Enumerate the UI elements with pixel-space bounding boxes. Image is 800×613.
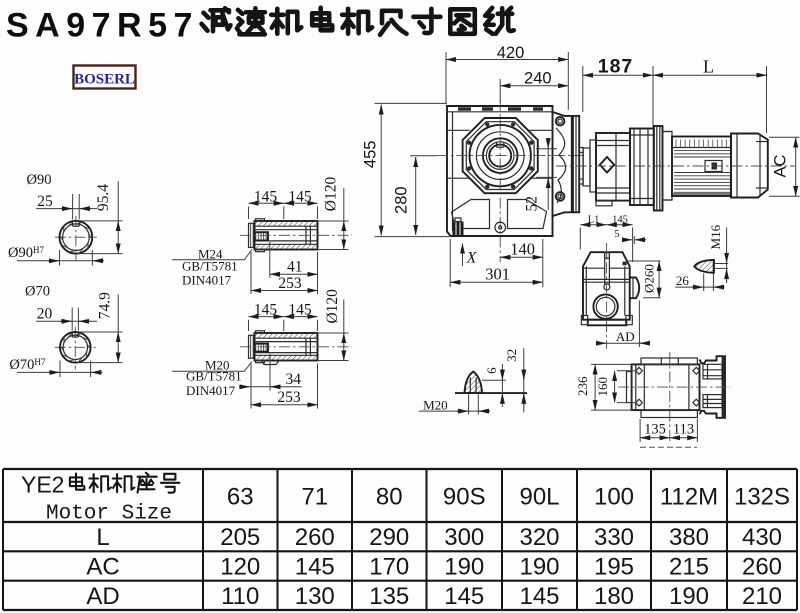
svg-text:5: 5 bbox=[614, 229, 619, 240]
svg-text:BOSERL: BOSERL bbox=[74, 72, 135, 88]
svg-text:Motor Size: Motor Size bbox=[46, 503, 172, 526]
svg-text:80: 80 bbox=[376, 484, 403, 511]
svg-text:455: 455 bbox=[361, 141, 379, 169]
svg-text:GB/T5781: GB/T5781 bbox=[182, 258, 238, 273]
svg-text:210: 210 bbox=[742, 583, 782, 610]
svg-text:100: 100 bbox=[594, 484, 634, 511]
svg-text:63: 63 bbox=[227, 484, 254, 511]
svg-text:260: 260 bbox=[742, 554, 782, 581]
svg-text:74.9: 74.9 bbox=[96, 292, 113, 319]
svg-text:135: 135 bbox=[644, 421, 666, 437]
svg-text:X: X bbox=[466, 250, 478, 267]
svg-text:34: 34 bbox=[286, 371, 302, 388]
svg-text:AC: AC bbox=[772, 154, 790, 177]
svg-text:145: 145 bbox=[254, 302, 278, 319]
svg-text:253: 253 bbox=[277, 389, 301, 406]
svg-text:32: 32 bbox=[504, 349, 519, 362]
svg-text:145: 145 bbox=[288, 302, 312, 319]
svg-text:380: 380 bbox=[669, 524, 709, 551]
svg-text:145: 145 bbox=[444, 583, 484, 610]
svg-text:Ø70: Ø70 bbox=[25, 284, 50, 300]
svg-text:20: 20 bbox=[37, 306, 53, 323]
svg-text:240: 240 bbox=[524, 70, 552, 88]
svg-text:205: 205 bbox=[220, 524, 260, 551]
svg-text:26: 26 bbox=[676, 273, 690, 288]
svg-text:GB/T5781: GB/T5781 bbox=[186, 369, 242, 384]
svg-text:112M: 112M bbox=[660, 484, 718, 511]
svg-text:430: 430 bbox=[742, 524, 782, 551]
svg-text:Ø120: Ø120 bbox=[324, 289, 341, 324]
svg-text:145: 145 bbox=[519, 583, 559, 610]
svg-text:AD: AD bbox=[86, 583, 119, 610]
svg-text:52: 52 bbox=[524, 196, 541, 212]
svg-text:M16: M16 bbox=[708, 224, 723, 249]
svg-text:Ø120: Ø120 bbox=[322, 177, 339, 212]
svg-text:120: 120 bbox=[220, 554, 260, 581]
svg-text:190: 190 bbox=[519, 554, 559, 581]
svg-text:290: 290 bbox=[369, 524, 409, 551]
svg-text:145: 145 bbox=[288, 188, 312, 205]
svg-text:113: 113 bbox=[673, 421, 694, 437]
svg-text:AD: AD bbox=[616, 329, 635, 344]
svg-text:DIN4017: DIN4017 bbox=[182, 272, 232, 287]
svg-text:215: 215 bbox=[669, 554, 709, 581]
svg-text:145: 145 bbox=[295, 554, 335, 581]
svg-text:253: 253 bbox=[278, 275, 302, 292]
svg-text:L: L bbox=[96, 524, 109, 551]
svg-text:AC: AC bbox=[86, 554, 119, 581]
svg-text:145: 145 bbox=[254, 188, 278, 205]
svg-text:Ø90: Ø90 bbox=[27, 172, 52, 188]
svg-text:190: 190 bbox=[669, 583, 709, 610]
svg-text:236: 236 bbox=[575, 376, 590, 396]
svg-text:L1: L1 bbox=[588, 214, 600, 225]
svg-text:132S: 132S bbox=[734, 484, 790, 511]
svg-text:180: 180 bbox=[594, 583, 634, 610]
svg-text:71: 71 bbox=[301, 484, 328, 511]
svg-text:90L: 90L bbox=[519, 484, 559, 511]
svg-text:135: 135 bbox=[369, 583, 409, 610]
svg-text:160: 160 bbox=[595, 377, 610, 397]
svg-text:320: 320 bbox=[519, 524, 559, 551]
svg-text:170: 170 bbox=[369, 554, 409, 581]
svg-text:140: 140 bbox=[510, 240, 535, 259]
svg-text:110: 110 bbox=[221, 583, 259, 610]
svg-text:6: 6 bbox=[484, 367, 499, 374]
svg-text:SA97R57: SA97R57 bbox=[6, 7, 199, 45]
svg-text:330: 330 bbox=[594, 524, 634, 551]
svg-text:25: 25 bbox=[37, 193, 53, 210]
svg-text:187: 187 bbox=[598, 56, 634, 78]
svg-text:90S: 90S bbox=[443, 484, 486, 511]
svg-text:195: 195 bbox=[594, 554, 634, 581]
svg-text:280: 280 bbox=[393, 186, 411, 214]
svg-text:41: 41 bbox=[287, 258, 303, 275]
svg-text:130: 130 bbox=[295, 583, 335, 610]
svg-text:145: 145 bbox=[612, 214, 628, 225]
svg-text:DIN4017: DIN4017 bbox=[186, 383, 236, 398]
svg-text:Ø260: Ø260 bbox=[642, 264, 657, 293]
svg-text:95.4: 95.4 bbox=[95, 184, 112, 211]
svg-text:260: 260 bbox=[295, 524, 335, 551]
svg-text:YE2: YE2 bbox=[21, 472, 64, 498]
svg-text:190: 190 bbox=[444, 554, 484, 581]
svg-text:301: 301 bbox=[485, 264, 510, 283]
svg-text:300: 300 bbox=[444, 524, 484, 551]
svg-text:M20: M20 bbox=[423, 398, 448, 413]
svg-text:L: L bbox=[703, 57, 714, 77]
